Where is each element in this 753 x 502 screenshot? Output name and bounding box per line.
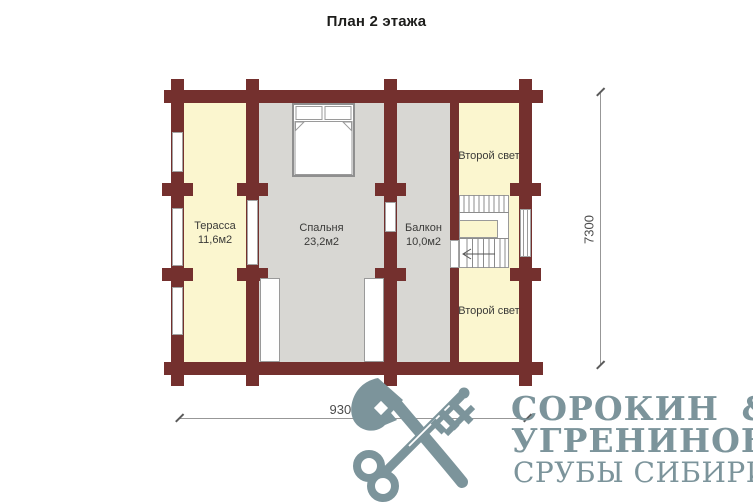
terrace-railing-opening (172, 132, 183, 172)
bedroom-label: Спальня 23,2м2 (259, 222, 384, 249)
window-glass-line (523, 210, 528, 256)
balcony-name: Балкон (397, 222, 450, 236)
wall-top (164, 90, 543, 103)
logo-line2: УГРЕНИНОВ (511, 424, 753, 457)
log-joint (510, 268, 541, 281)
second-light-bottom-label: Второй свет (457, 305, 521, 319)
closet-left (260, 278, 280, 362)
axe-key-logo-icon (345, 372, 505, 502)
log-joint (510, 183, 541, 196)
door-balcony (385, 202, 396, 232)
terrace-name: Терасса (184, 220, 246, 234)
second-light-top-label: Второй свет (457, 150, 521, 164)
log-joint (375, 183, 406, 196)
bedroom-area: 23,2м2 (259, 236, 384, 250)
terrace-label: Терасса 11,6м2 (184, 220, 246, 247)
closet-right (364, 278, 384, 362)
floor-plan-page: План 2 этажа (0, 0, 753, 502)
terrace-area: 11,6м2 (184, 234, 246, 248)
balcony-area: 10,0м2 (397, 236, 450, 250)
wall-balcony-stair (450, 103, 459, 362)
bedroom-name: Спальня (259, 222, 384, 236)
door-stair-hall (450, 240, 459, 268)
wall-bedroom-balcony (384, 79, 397, 386)
log-joint (162, 183, 193, 196)
terrace-railing-opening (172, 208, 183, 266)
door-terrace (247, 200, 258, 265)
terrace-railing-opening (172, 287, 183, 335)
window-right-wall (520, 209, 531, 257)
bed-icon (292, 103, 355, 177)
balcony-label: Балкон 10,0м2 (397, 222, 450, 249)
staircase-icon (459, 195, 509, 268)
dimension-height-label: 7300 (582, 200, 597, 260)
dimension-line-vertical (600, 92, 601, 365)
logo-line3: СРУБЫ СИБИРИ (513, 459, 753, 487)
log-joint (162, 268, 193, 281)
log-joint (237, 183, 268, 196)
